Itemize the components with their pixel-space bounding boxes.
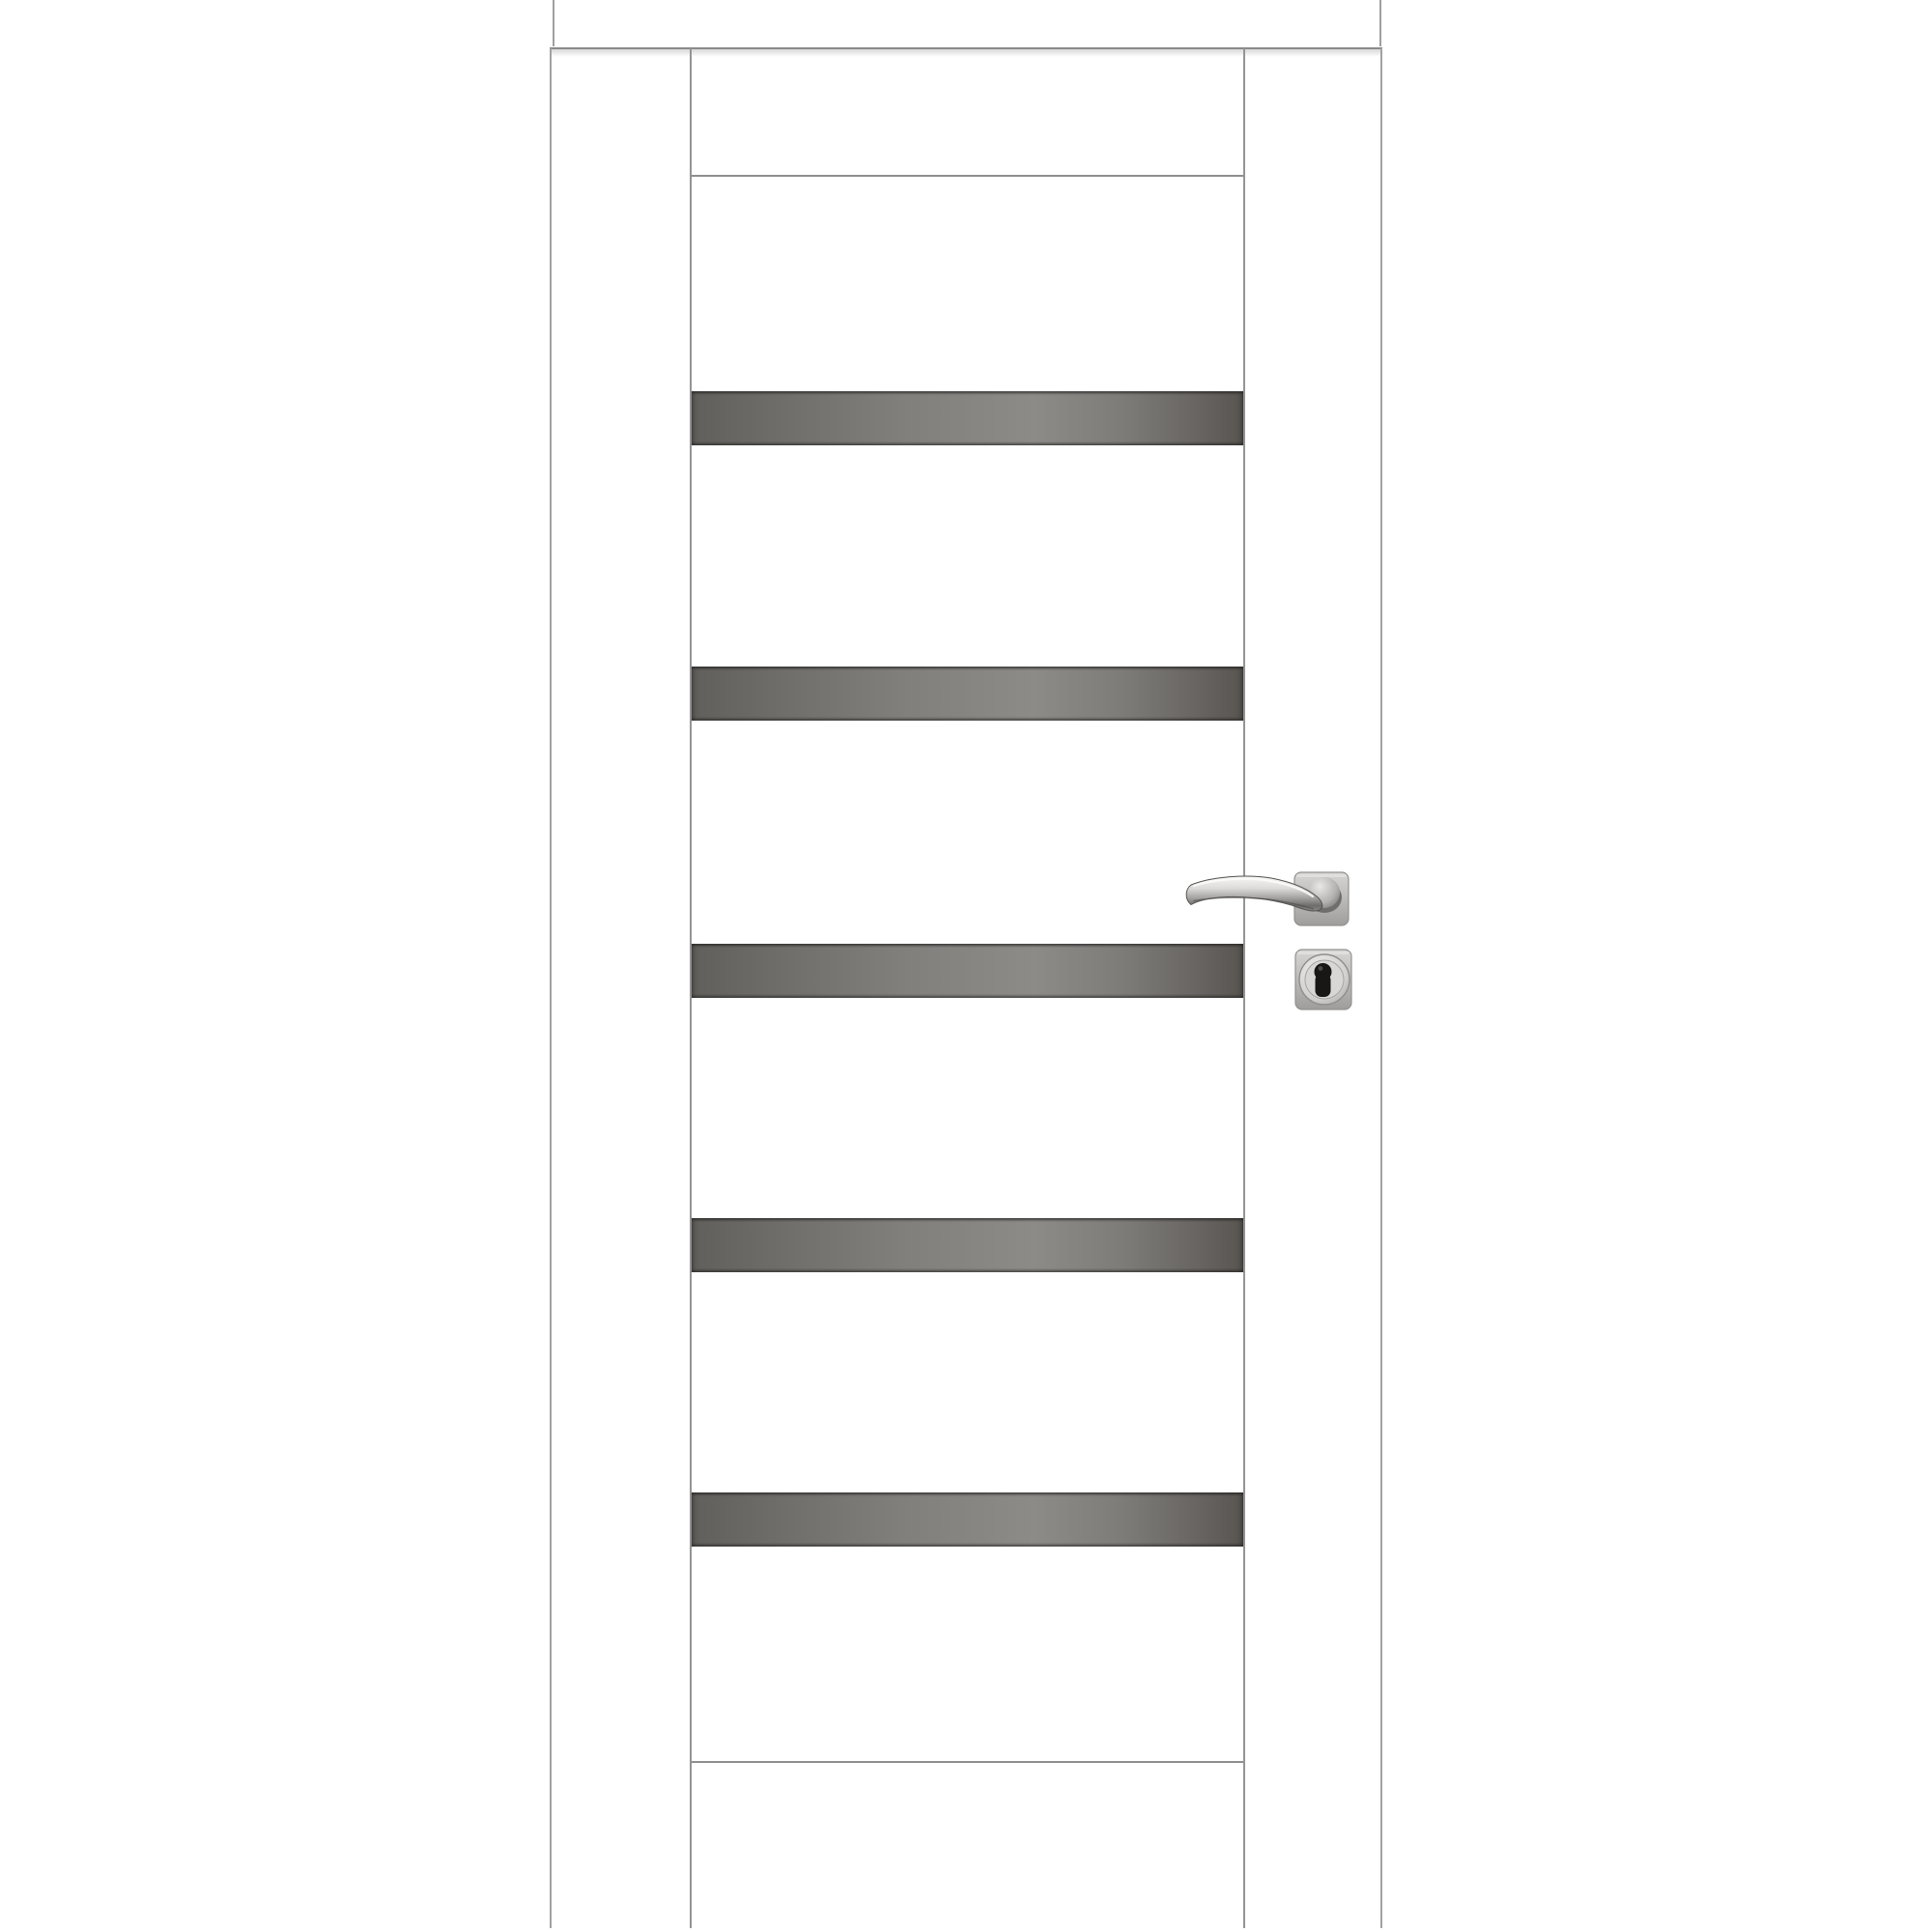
bottom-rail-seam [692,1761,1243,1763]
glass-stripe [692,391,1243,445]
door-right-outer-edge [1380,48,1382,1928]
wall-reveal-line-right [1379,0,1381,46]
glass-stripe [692,667,1243,721]
glass-stripe [692,1218,1243,1272]
door-product-photo [0,0,1932,1932]
door-hardware [1179,865,1362,1019]
glass-stripe [692,944,1243,998]
left-stile-outer-edge [550,48,552,1928]
keyhole-cylinder [1315,963,1332,997]
head-seam-shadow [550,49,1382,57]
glass-stripe [692,1492,1243,1547]
top-rail-seam [692,175,1243,177]
wall-reveal-line-left [553,0,554,46]
